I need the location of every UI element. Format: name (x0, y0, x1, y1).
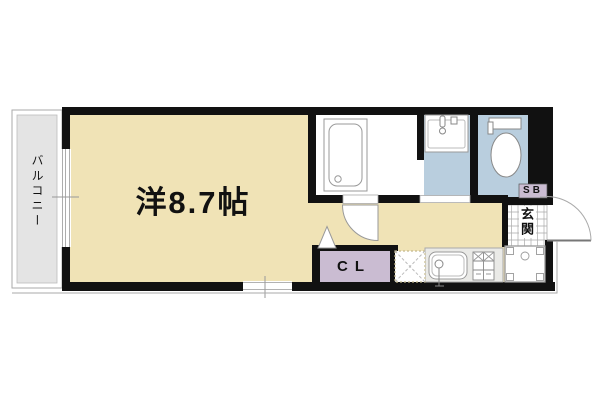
wall-bath-washroom-divider (417, 107, 424, 160)
wall-room-bath-divider (308, 107, 316, 203)
kitchen-unit (425, 248, 503, 286)
bathtub-icon (324, 119, 367, 191)
wall-bath-bottom-left (308, 195, 343, 203)
shoe-box-label: SB (519, 184, 547, 198)
balcony-label: バルコニー (29, 154, 46, 254)
wall-left-upper (62, 107, 70, 152)
washing-machine-space-icon (505, 246, 545, 282)
floor-plan: 洋8.7帖 バルコニー CL SB 玄関 (0, 0, 600, 400)
wall-bottom-right (292, 282, 555, 291)
closet-label: CL (318, 258, 390, 275)
refrigerator-space-icon (395, 251, 425, 282)
wall-washroom-toilet-divider (470, 107, 478, 203)
wall-bath-bottom-right (378, 195, 420, 203)
wash-basin-icon (425, 115, 468, 152)
wall-entrance-left (502, 197, 508, 247)
wall-entrance-right (545, 240, 553, 291)
wall-bottom-left (62, 282, 243, 291)
washroom-sliding-door (420, 196, 470, 203)
entrance-label: 玄関 (519, 206, 536, 238)
gas-stove-icon (473, 252, 494, 280)
wall-top (62, 107, 553, 115)
main-room-label: 洋8.7帖 (88, 177, 298, 222)
